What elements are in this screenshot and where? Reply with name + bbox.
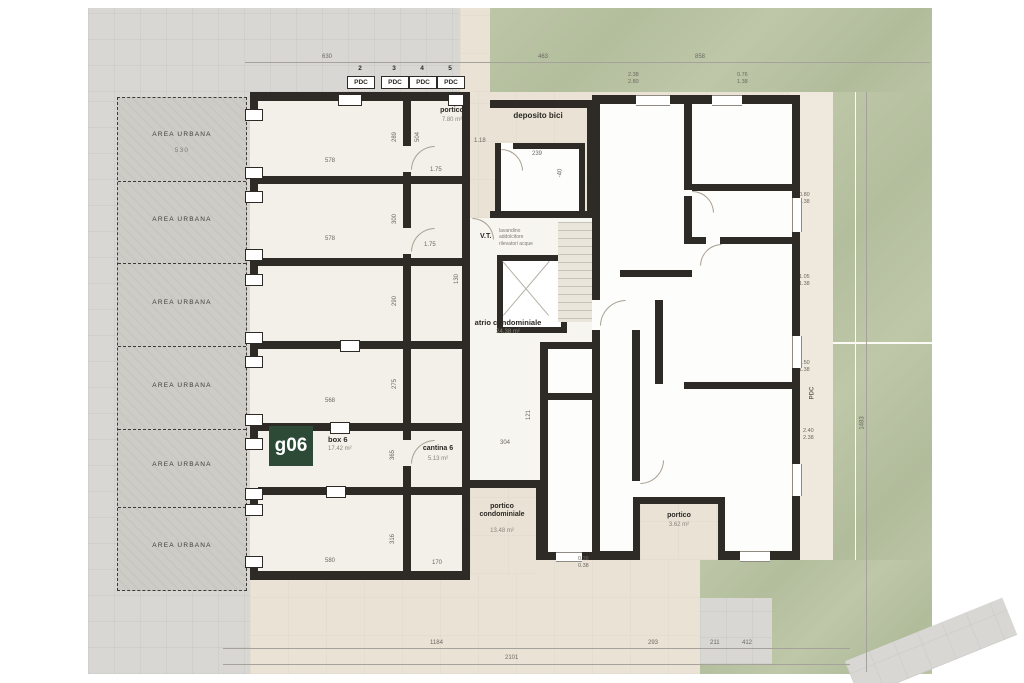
garage-door-opening bbox=[250, 513, 258, 557]
unit-badge-g06: g06 bbox=[269, 426, 313, 466]
parcel-divider bbox=[118, 429, 246, 430]
door-jamb bbox=[245, 167, 263, 179]
dim-box-height-4: 275 bbox=[392, 379, 398, 389]
dim-box-height-3: 290 bbox=[392, 296, 398, 306]
wall-tab bbox=[340, 340, 360, 352]
area-urbana-label: AREA URBANA bbox=[118, 542, 246, 549]
vt-description: lavandino addolcitore rilevatori acque bbox=[499, 228, 533, 247]
room-area-portico-cond: 13.48 m² bbox=[462, 528, 542, 534]
dim-line-top bbox=[245, 62, 930, 63]
door-jamb bbox=[245, 556, 263, 568]
dim-pair-topright-2: 0.76 1.38 bbox=[737, 72, 748, 86]
dim-box-width-2: 578 bbox=[325, 236, 335, 242]
dim-box-height-6: 316 bbox=[390, 534, 396, 544]
pillar bbox=[536, 488, 548, 560]
door-jamb bbox=[245, 504, 263, 516]
window bbox=[792, 336, 802, 368]
room-area-portico-right: 3.62 m² bbox=[650, 522, 708, 528]
pdc-number: 3 bbox=[381, 65, 407, 72]
paving-patch bbox=[700, 598, 772, 664]
dim-line-bottom-total bbox=[223, 664, 850, 665]
dim-right-vertical: 1483 bbox=[860, 416, 866, 429]
wall-partition bbox=[684, 237, 706, 244]
right-building-floor bbox=[600, 104, 792, 551]
room-label-portico-cond: portico condominiale bbox=[462, 503, 542, 520]
wall-partition bbox=[250, 176, 462, 184]
dim-line-bottom bbox=[223, 648, 850, 649]
window bbox=[712, 95, 742, 106]
wall-partition bbox=[632, 330, 640, 481]
area-urbana-label: AREA URBANA bbox=[118, 216, 246, 223]
room-label-portico-top: portico bbox=[428, 107, 476, 115]
staircase bbox=[558, 222, 592, 322]
left-building-floor bbox=[250, 92, 470, 580]
door-jamb bbox=[245, 191, 263, 203]
pdc-box: PDC bbox=[409, 76, 437, 89]
room-label-box6: box 6 bbox=[328, 435, 348, 444]
dim-bottom-2: 293 bbox=[648, 640, 658, 646]
dim-top-2: 463 bbox=[538, 54, 548, 60]
room-area-box6: 17.42 m² bbox=[328, 446, 352, 452]
door-opening bbox=[403, 146, 411, 172]
wall-partition bbox=[540, 342, 595, 349]
area-urbana-label: AREA URBANA bbox=[118, 382, 246, 389]
window bbox=[792, 198, 802, 232]
grass-top bbox=[490, 8, 932, 92]
dim-bottom-3: 211 bbox=[710, 640, 720, 646]
pdc-box: PDC bbox=[347, 76, 375, 89]
window bbox=[740, 551, 770, 562]
dim-line-right bbox=[866, 92, 867, 672]
wall-partition bbox=[684, 382, 792, 389]
window bbox=[792, 464, 802, 496]
pdc-number: 5 bbox=[437, 65, 463, 72]
middle-room-floor bbox=[548, 400, 592, 552]
door-jamb bbox=[245, 356, 263, 368]
wall-atrio-top bbox=[490, 211, 595, 218]
garage-door-opening bbox=[250, 283, 258, 333]
wall-partition bbox=[720, 237, 792, 244]
grass-right bbox=[833, 92, 932, 560]
dim-130: 130 bbox=[454, 274, 460, 284]
dim-bottom-4: 412 bbox=[742, 640, 752, 646]
door-jamb bbox=[245, 414, 263, 426]
dim-pair-038: 0.38 0.38 bbox=[578, 556, 589, 570]
room-label-deposito-bici: deposito bici bbox=[495, 111, 581, 121]
dim-pair-right-2: 1.05 1.38 bbox=[799, 274, 810, 288]
fence-line-horizontal bbox=[833, 342, 932, 344]
dim-door-175b: 1.75 bbox=[424, 242, 436, 248]
room-area-cantina6: 5.13 m² bbox=[410, 456, 466, 462]
room-area-portico-top: 7.80 m² bbox=[428, 117, 476, 123]
dim-pair-topright-1: 2.38 2.80 bbox=[628, 72, 639, 86]
door-jamb bbox=[245, 332, 263, 344]
wall-partition bbox=[540, 393, 595, 400]
room-label-atrio: atrio condominiale bbox=[458, 318, 558, 327]
dim-box-width-4: 580 bbox=[325, 558, 335, 564]
wall-deposito-inner-top bbox=[513, 143, 585, 149]
pdc-number: 4 bbox=[409, 65, 435, 72]
door-jamb bbox=[245, 109, 263, 121]
area-urbana-zone: AREA URBANA 530 AREA URBANA AREA URBANA … bbox=[117, 97, 247, 591]
window bbox=[636, 95, 670, 106]
level-marker: -40 bbox=[557, 169, 563, 178]
dim-door-175a: 1.75 bbox=[430, 167, 442, 173]
dim-121: 121 bbox=[526, 410, 532, 420]
dim-box-height-2: 300 bbox=[392, 214, 398, 224]
garage-door-opening bbox=[250, 365, 258, 415]
area-urbana-label: AREA URBANA bbox=[118, 299, 246, 306]
wall-partition bbox=[620, 270, 692, 277]
garage-door-opening bbox=[250, 200, 258, 250]
wall-portico-right-left bbox=[633, 497, 640, 560]
right-building-wall-top bbox=[592, 95, 800, 104]
area-urbana-label: AREA URBANA bbox=[118, 131, 246, 138]
parcel-divider bbox=[118, 263, 246, 264]
wall-partition bbox=[250, 258, 462, 266]
dim-304: 304 bbox=[500, 440, 510, 446]
door-opening bbox=[592, 300, 600, 330]
dim-170: 170 bbox=[432, 560, 442, 566]
door-jamb bbox=[245, 249, 263, 261]
dim-top-3: 858 bbox=[695, 54, 705, 60]
dim-box-width-1: 578 bbox=[325, 158, 335, 164]
dim-top-1: 630 bbox=[322, 54, 332, 60]
dim-bottom-total: 2101 bbox=[505, 655, 518, 661]
dim-bottom-1: 1184 bbox=[430, 640, 443, 646]
pdc-number: 2 bbox=[347, 65, 373, 72]
door-opening bbox=[403, 228, 411, 254]
wall-partition bbox=[692, 184, 792, 191]
left-building-wall-bottom bbox=[250, 571, 470, 580]
garage-door-opening bbox=[250, 118, 258, 168]
wall-portico-cond-top bbox=[462, 480, 542, 488]
wall-portico-right-right bbox=[718, 497, 725, 560]
pdc-box: PDC bbox=[381, 76, 409, 89]
parcel-divider bbox=[118, 346, 246, 347]
wall-partition bbox=[540, 342, 548, 488]
wall-partition bbox=[684, 104, 692, 190]
garage-door-opening bbox=[250, 447, 258, 489]
dim-box-height-1: 289 bbox=[392, 132, 398, 142]
dim-deposito-239: 239 bbox=[532, 151, 542, 157]
dim-pair-right-4: 2.40 2.38 bbox=[803, 428, 814, 442]
wall-tab bbox=[338, 94, 362, 106]
room-label-cantina6: cantina 6 bbox=[410, 445, 466, 453]
door-jamb bbox=[245, 438, 263, 450]
floor-plan-canvas: AREA URBANA 530 AREA URBANA AREA URBANA … bbox=[0, 0, 1024, 683]
wall-tab bbox=[448, 94, 464, 106]
room-area-atrio: 24.38 m² bbox=[458, 329, 558, 335]
wall-partition bbox=[655, 300, 663, 384]
door-jamb bbox=[245, 488, 263, 500]
room-label-portico-right: portico bbox=[650, 512, 708, 520]
wall-deposito-inner-right bbox=[579, 143, 585, 217]
pdc-box: PDC bbox=[437, 76, 465, 89]
wall-portico-right-top bbox=[633, 497, 725, 504]
wall-partition bbox=[250, 487, 462, 495]
parcel-divider bbox=[118, 181, 246, 182]
dim-box-height-5: 365 bbox=[390, 450, 396, 460]
dim-box-width-3: 568 bbox=[325, 398, 335, 404]
middle-room-floor bbox=[546, 349, 592, 393]
parcel-dim: 530 bbox=[118, 147, 246, 154]
wall-tab bbox=[330, 422, 350, 434]
wall-tab bbox=[326, 486, 346, 498]
pdc-right-label: PDC bbox=[809, 387, 815, 400]
door-jamb bbox=[245, 274, 263, 286]
fence-line-vertical bbox=[855, 92, 856, 560]
dim-118: 1.18 bbox=[474, 138, 486, 144]
parcel-divider bbox=[118, 507, 246, 508]
area-urbana-label: AREA URBANA bbox=[118, 461, 246, 468]
dim-cantina-504: 504 bbox=[415, 132, 421, 142]
wall-deposito-top bbox=[490, 100, 595, 108]
